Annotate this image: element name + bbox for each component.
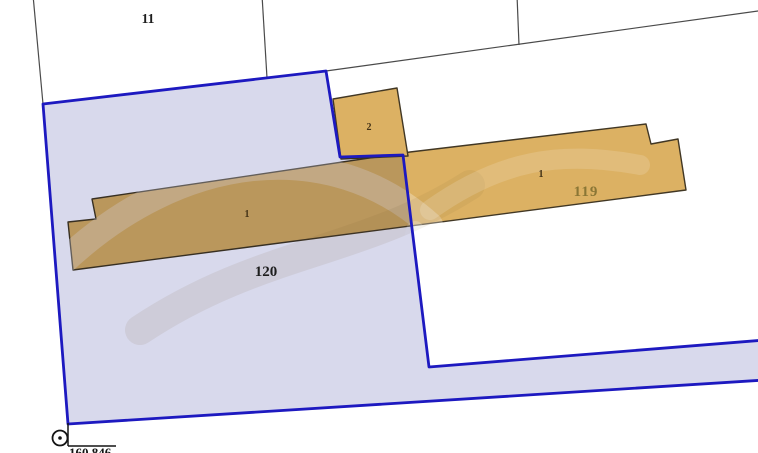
parcel-11-label: 11 xyxy=(142,11,155,26)
building-1-right-label: 1 xyxy=(539,169,544,180)
building-2-label: 2 xyxy=(367,122,372,133)
parcel-120-label: 120 xyxy=(255,264,278,280)
parcel-119-label: 119 xyxy=(574,184,599,200)
survey-point-value: 160.846 xyxy=(69,445,112,453)
map-svg: 11 120 119 1 2 1 160.846 xyxy=(0,0,758,453)
cadastral-map-canvas: 11 120 119 1 2 1 160.846 xyxy=(0,0,758,453)
building-1-left-label: 1 xyxy=(245,209,250,220)
survey-point-dot-icon xyxy=(58,436,62,440)
